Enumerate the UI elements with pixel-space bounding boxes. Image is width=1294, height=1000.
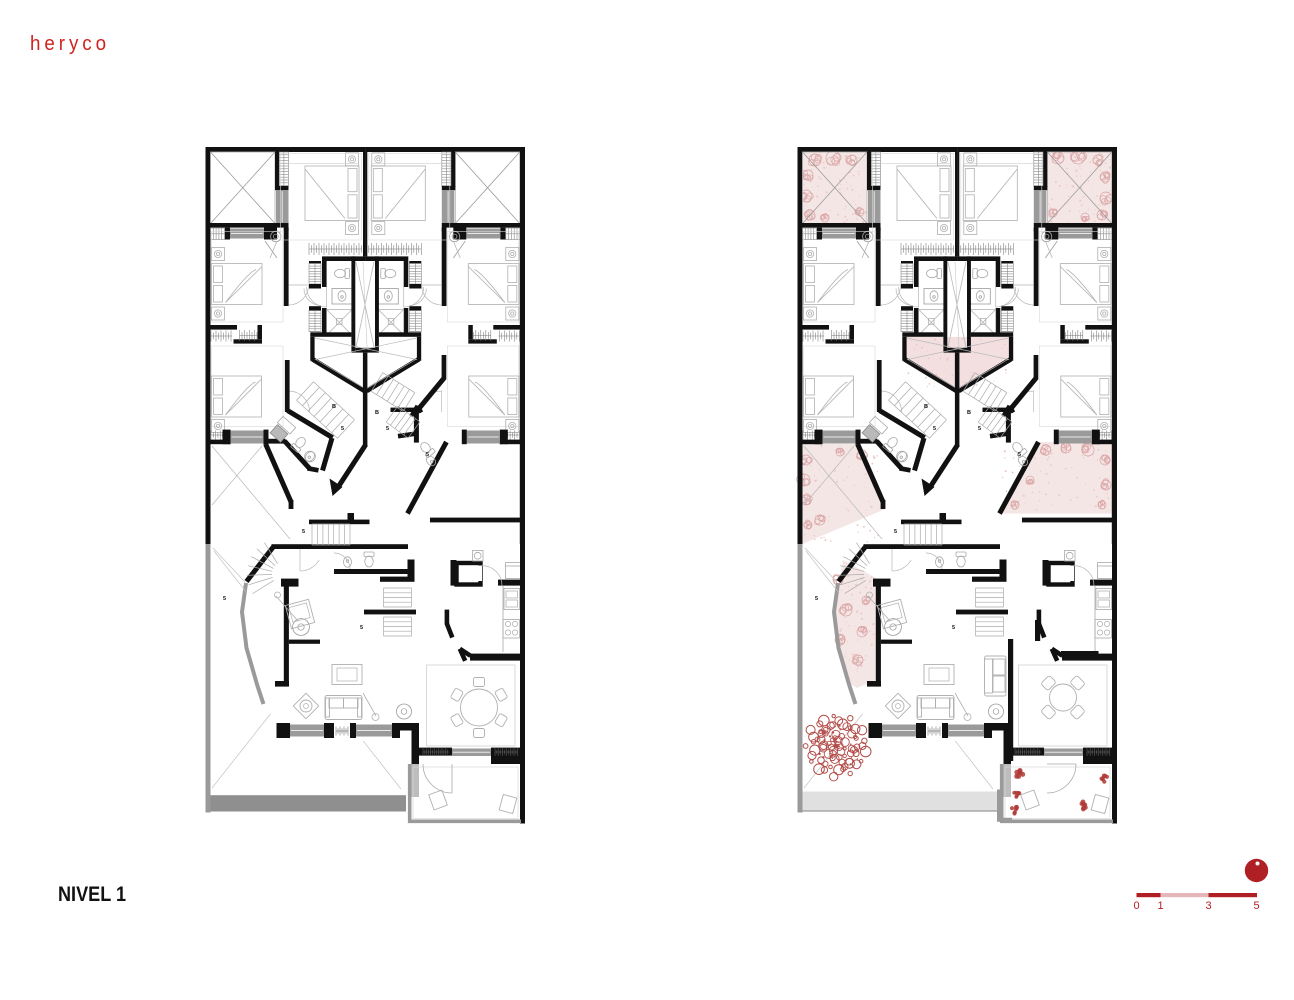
svg-text:5: 5: [426, 452, 429, 458]
svg-text:3: 3: [1205, 900, 1211, 912]
svg-text:5: 5: [223, 596, 226, 602]
svg-text:5: 5: [1253, 900, 1259, 912]
svg-text:5: 5: [360, 625, 363, 631]
svg-text:heryco: heryco: [30, 33, 110, 55]
svg-text:B: B: [332, 404, 336, 410]
svg-text:5: 5: [386, 426, 389, 432]
svg-text:NIVEL 1: NIVEL 1: [58, 882, 126, 906]
svg-text:1: 1: [1157, 900, 1163, 912]
svg-text:0: 0: [1133, 900, 1139, 912]
svg-text:5: 5: [341, 426, 344, 432]
svg-text:B: B: [375, 410, 379, 416]
svg-text:5: 5: [302, 529, 305, 535]
